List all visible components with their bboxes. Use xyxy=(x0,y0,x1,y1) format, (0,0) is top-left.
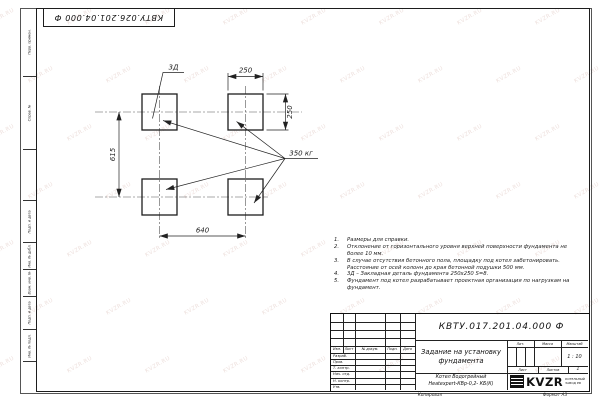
foundation-squares xyxy=(142,94,263,215)
tb-line xyxy=(331,322,415,323)
format-label: Формат А3 xyxy=(515,393,595,398)
drawing-title: Задание на установку фундамента xyxy=(417,340,505,373)
embed-detail-label: 3Д xyxy=(169,64,179,72)
sheets-value: 1 xyxy=(568,366,588,373)
kvzr-logo-caption: КОТЕЛЬНЫЙ ЗАВОД РФ xyxy=(565,378,585,385)
sheets-label: Листов xyxy=(538,366,568,373)
scale-label: Масштаб xyxy=(561,340,588,347)
tb-line xyxy=(331,330,415,331)
dim-label-640-bottom: 640 xyxy=(196,227,210,235)
scale-value: 1 : 10 xyxy=(561,347,588,366)
product-line2: Heatexpert-КВр-0,2- КБ(К) xyxy=(429,382,494,388)
dim-label-615-left: 615 xyxy=(109,147,117,161)
tb-col-podp: Подп. xyxy=(385,346,400,353)
kvzr-logo-text: KVZR xyxy=(526,375,563,389)
dim-label-250-top: 250 xyxy=(239,67,253,75)
tb-col-docnum: № докум. xyxy=(355,346,385,353)
note-item: 5.Фундамент под котел разрабатывает прое… xyxy=(334,278,572,292)
notes-list: 1.Размеры для справки. 2.Отклонение от г… xyxy=(334,237,572,292)
embed-detail-callout xyxy=(153,73,185,119)
product-name: Котел Водогрейный Heatexpert-КВр-0,2- КБ… xyxy=(417,373,505,390)
copied-label: Копировал xyxy=(390,393,470,398)
top-doc-number: КВТУ.026.201.04.000 Ф xyxy=(54,13,163,22)
title-block: Изм. Лист № докум. Подп. Дата Разраб. Пр… xyxy=(330,313,590,392)
weight-callout-350kg xyxy=(163,121,318,204)
kvzr-logo-icon xyxy=(510,375,524,388)
tb-row-utv: Утв. xyxy=(331,384,355,390)
note-item: 4.3Д – Закладная деталь фундамента 250х2… xyxy=(334,271,572,278)
doc-number: КВТУ.017.201.04.000 Ф xyxy=(415,314,588,340)
lit-label: Лит. xyxy=(507,340,534,347)
tb-line xyxy=(525,347,526,366)
center-lines xyxy=(95,86,302,240)
dim-label-250-right: 250 xyxy=(286,105,294,119)
note-item: 2.Отклонение от горизонтального уровня в… xyxy=(334,244,572,258)
weight-label: 350 кг xyxy=(289,150,313,158)
drawing-sheet: KVZR.RUKVZR.RUKVZR.RUKVZR.RUKVZR.RUKVZR.… xyxy=(0,0,600,400)
tb-line xyxy=(516,347,517,366)
top-doc-number-stamp: КВТУ.026.201.04.000 Ф xyxy=(43,8,175,27)
sheet-label: Лист xyxy=(507,366,538,373)
mass-label: Масса xyxy=(534,340,561,347)
tb-col-data: Дата xyxy=(400,346,415,353)
company-logo: KVZR КОТЕЛЬНЫЙ ЗАВОД РФ xyxy=(507,373,588,390)
note-item: 1.Размеры для справки. xyxy=(334,237,572,244)
note-item: 3.В случае отсутствия бетонного пола, пл… xyxy=(334,258,572,272)
tb-line xyxy=(331,338,415,339)
